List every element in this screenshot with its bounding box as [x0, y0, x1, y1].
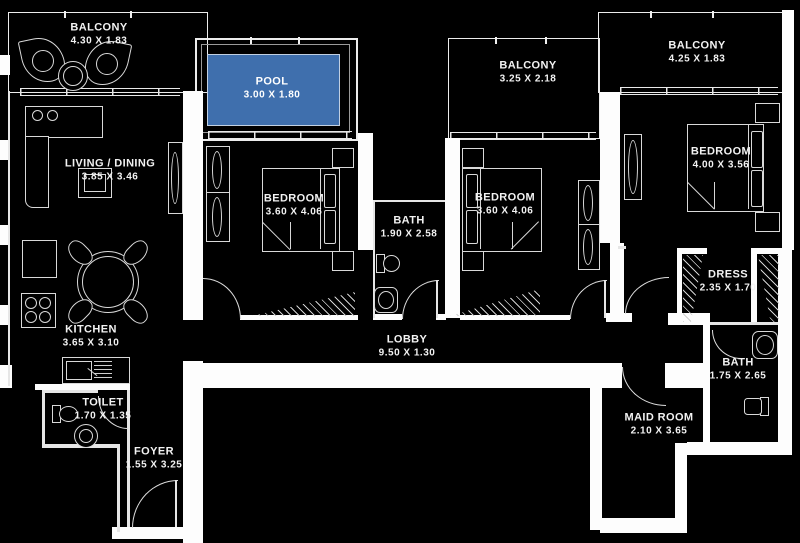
pillow — [324, 210, 336, 244]
washbasin-icon — [378, 291, 394, 309]
wall-segment — [445, 138, 460, 318]
room-name: BALCONY — [499, 59, 556, 71]
wall-segment — [600, 92, 620, 243]
pillow — [751, 170, 763, 207]
door-arc — [625, 277, 669, 314]
wall-segment — [606, 313, 632, 322]
balcony-divider-tick — [495, 37, 497, 44]
bed-fold-line — [714, 182, 715, 209]
room-name: FOYER — [134, 445, 174, 457]
room-name: BEDROOM — [475, 191, 535, 203]
nightstand-icon — [755, 212, 780, 232]
room-name: LOBBY — [387, 333, 428, 345]
wall-segment — [677, 248, 707, 254]
wall-segment — [752, 248, 782, 254]
room-label-bath-2: BATH 1.75 X 2.65 — [710, 355, 767, 382]
room-label-maid-room: MAID ROOM 2.10 X 3.65 — [625, 410, 694, 437]
bed-fold-line — [290, 222, 291, 249]
wall-segment — [600, 518, 687, 533]
wall-segment — [703, 325, 710, 445]
room-dims: 9.50 X 1.30 — [379, 347, 436, 360]
pillow — [324, 174, 336, 208]
wall-segment — [0, 365, 12, 388]
wall-segment — [183, 361, 203, 543]
room-label-balcony-tr: BALCONY 4.25 X 1.83 — [668, 38, 725, 65]
wall-segment — [358, 133, 373, 250]
wall-segment — [203, 363, 593, 388]
floor-plan: BALCONY 4.30 X 1.83 POOL 3.00 X 1.80 BAL… — [0, 0, 800, 543]
stove-burner-icon — [25, 297, 37, 309]
wall-line — [618, 246, 626, 249]
balcony-divider-tick — [650, 11, 652, 18]
room-label-lobby: LOBBY 9.50 X 1.30 — [379, 332, 436, 359]
balcony-chair-seat-icon — [96, 53, 118, 75]
washbasin-icon — [79, 429, 93, 443]
room-dims: 3.25 X 2.18 — [499, 73, 556, 86]
room-name: BATH — [393, 214, 424, 226]
sofa-cushion-icon — [32, 110, 43, 121]
room-dims: 4.30 X 1.83 — [70, 35, 127, 48]
wall-segment — [590, 363, 602, 530]
wall-line — [117, 444, 120, 532]
wall-line — [42, 390, 45, 447]
door-arc — [402, 280, 439, 319]
room-label-foyer: FOYER 1.55 X 3.25 — [126, 444, 183, 471]
wall-segment — [183, 91, 203, 320]
room-name: MAID ROOM — [625, 411, 694, 423]
room-name: POOL — [256, 75, 289, 87]
room-dims: 2.10 X 3.65 — [625, 425, 694, 438]
room-label-balcony-mid: BALCONY 3.25 X 2.18 — [499, 58, 556, 85]
balcony-divider-tick — [545, 37, 547, 44]
room-dims: 3.85 X 3.46 — [65, 171, 155, 184]
wall-segment — [677, 248, 682, 325]
room-label-pool: POOL 3.00 X 1.80 — [244, 74, 301, 101]
room-name: BALCONY — [70, 21, 127, 33]
room-dims: 3.00 X 1.80 — [244, 89, 301, 102]
wall-segment — [782, 10, 794, 250]
kitchen-sink-basin-icon — [66, 361, 92, 380]
room-label-dress: DRESS 2.35 X 1.70 — [700, 267, 757, 294]
nightstand-icon — [332, 148, 354, 168]
wall-line — [42, 390, 98, 393]
wardrobe-handle-icon — [628, 140, 638, 194]
pillow — [751, 131, 763, 168]
kitchen-cabinet-icon — [22, 240, 57, 278]
bed-fold-line — [512, 222, 513, 249]
room-name: DRESS — [708, 268, 748, 280]
room-label-bath-1: BATH 1.90 X 2.58 — [381, 213, 438, 240]
stove-burner-icon — [25, 311, 37, 323]
wall-segment — [373, 314, 402, 320]
wardrobe-handle-icon — [583, 185, 593, 221]
room-label-kitchen: KITCHEN 3.65 X 3.10 — [63, 322, 120, 349]
window — [208, 131, 352, 139]
wardrobe-handle-icon — [583, 229, 593, 265]
sofa-icon — [25, 136, 49, 208]
balcony-divider-tick — [712, 11, 714, 18]
room-label-toilet: TOILET 1.70 X 1.35 — [75, 395, 132, 422]
wall-segment — [602, 363, 622, 388]
room-dims: 3.65 X 3.10 — [63, 337, 120, 350]
room-dims: 3.60 X 4.06 — [264, 206, 324, 219]
entrance-door-arc — [132, 480, 178, 528]
room-dims: 1.70 X 1.35 — [75, 410, 132, 423]
closet-hatch — [252, 292, 355, 316]
nightstand-icon — [332, 251, 354, 271]
room-label-living-dining: LIVING / DINING 3.85 X 3.46 — [65, 156, 155, 183]
wall-segment — [0, 55, 10, 75]
pool-edge-tick — [298, 37, 300, 44]
room-dims: 4.00 X 3.56 — [691, 159, 751, 172]
wall-line — [373, 200, 445, 202]
nightstand-icon — [462, 251, 484, 271]
wall-segment — [665, 363, 703, 388]
room-label-bedroom-3: BEDROOM 4.00 X 3.56 — [691, 144, 751, 171]
door-leaf — [436, 280, 438, 318]
toilet-icon — [744, 398, 762, 415]
room-name: BEDROOM — [691, 145, 751, 157]
wall-line — [710, 322, 778, 325]
room-name: BALCONY — [668, 39, 725, 51]
wall-line — [8, 91, 10, 386]
room-label-bedroom-2: BEDROOM 3.60 X 4.06 — [475, 190, 535, 217]
room-dims: 4.25 X 1.83 — [668, 53, 725, 66]
door-leaf — [604, 280, 606, 318]
balcony-chair-seat-icon — [32, 50, 54, 72]
washbasin-icon — [756, 335, 774, 355]
balcony-mid-outline — [448, 38, 600, 139]
pool-edge-tick — [250, 37, 252, 44]
door-arc — [622, 367, 666, 406]
room-dims: 3.60 X 4.06 — [475, 205, 535, 218]
balcony-table-icon — [63, 66, 83, 86]
room-name: LIVING / DINING — [65, 157, 155, 169]
window — [620, 87, 778, 95]
door-arc — [203, 278, 241, 319]
room-name: KITCHEN — [65, 323, 117, 335]
balcony-divider-tick — [64, 11, 66, 18]
toilet-icon — [383, 255, 400, 272]
room-label-bedroom-1: BEDROOM 3.60 X 4.06 — [264, 191, 324, 218]
sofa-cushion-icon — [47, 110, 58, 121]
door-arc — [570, 280, 607, 319]
wardrobe-handle-icon — [212, 197, 222, 237]
wall-segment — [778, 250, 792, 455]
room-dims: 2.35 X 1.70 — [700, 282, 757, 295]
room-label-balcony-tl: BALCONY 4.30 X 1.83 — [70, 20, 127, 47]
window — [450, 132, 596, 140]
nightstand-icon — [755, 103, 780, 123]
room-name: TOILET — [82, 396, 123, 408]
room-name: BEDROOM — [264, 192, 324, 204]
stove-burner-icon — [39, 311, 51, 323]
balcony-divider-tick — [130, 11, 132, 18]
room-dims: 1.90 X 2.58 — [381, 228, 438, 241]
wall-segment — [112, 527, 183, 539]
stove-burner-icon — [39, 297, 51, 309]
room-dims: 1.75 X 2.65 — [710, 370, 767, 383]
closet-hatch — [450, 289, 540, 316]
room-name: BATH — [722, 356, 753, 368]
wardrobe-handle-icon — [212, 151, 222, 189]
tv-lens-icon — [171, 152, 179, 204]
wall-segment — [675, 443, 687, 533]
door-leaf — [175, 480, 177, 527]
wall-segment — [610, 243, 624, 313]
closet-hatch — [758, 255, 779, 322]
room-dims: 1.55 X 3.25 — [126, 459, 183, 472]
nightstand-icon — [462, 148, 484, 168]
window — [20, 88, 180, 96]
